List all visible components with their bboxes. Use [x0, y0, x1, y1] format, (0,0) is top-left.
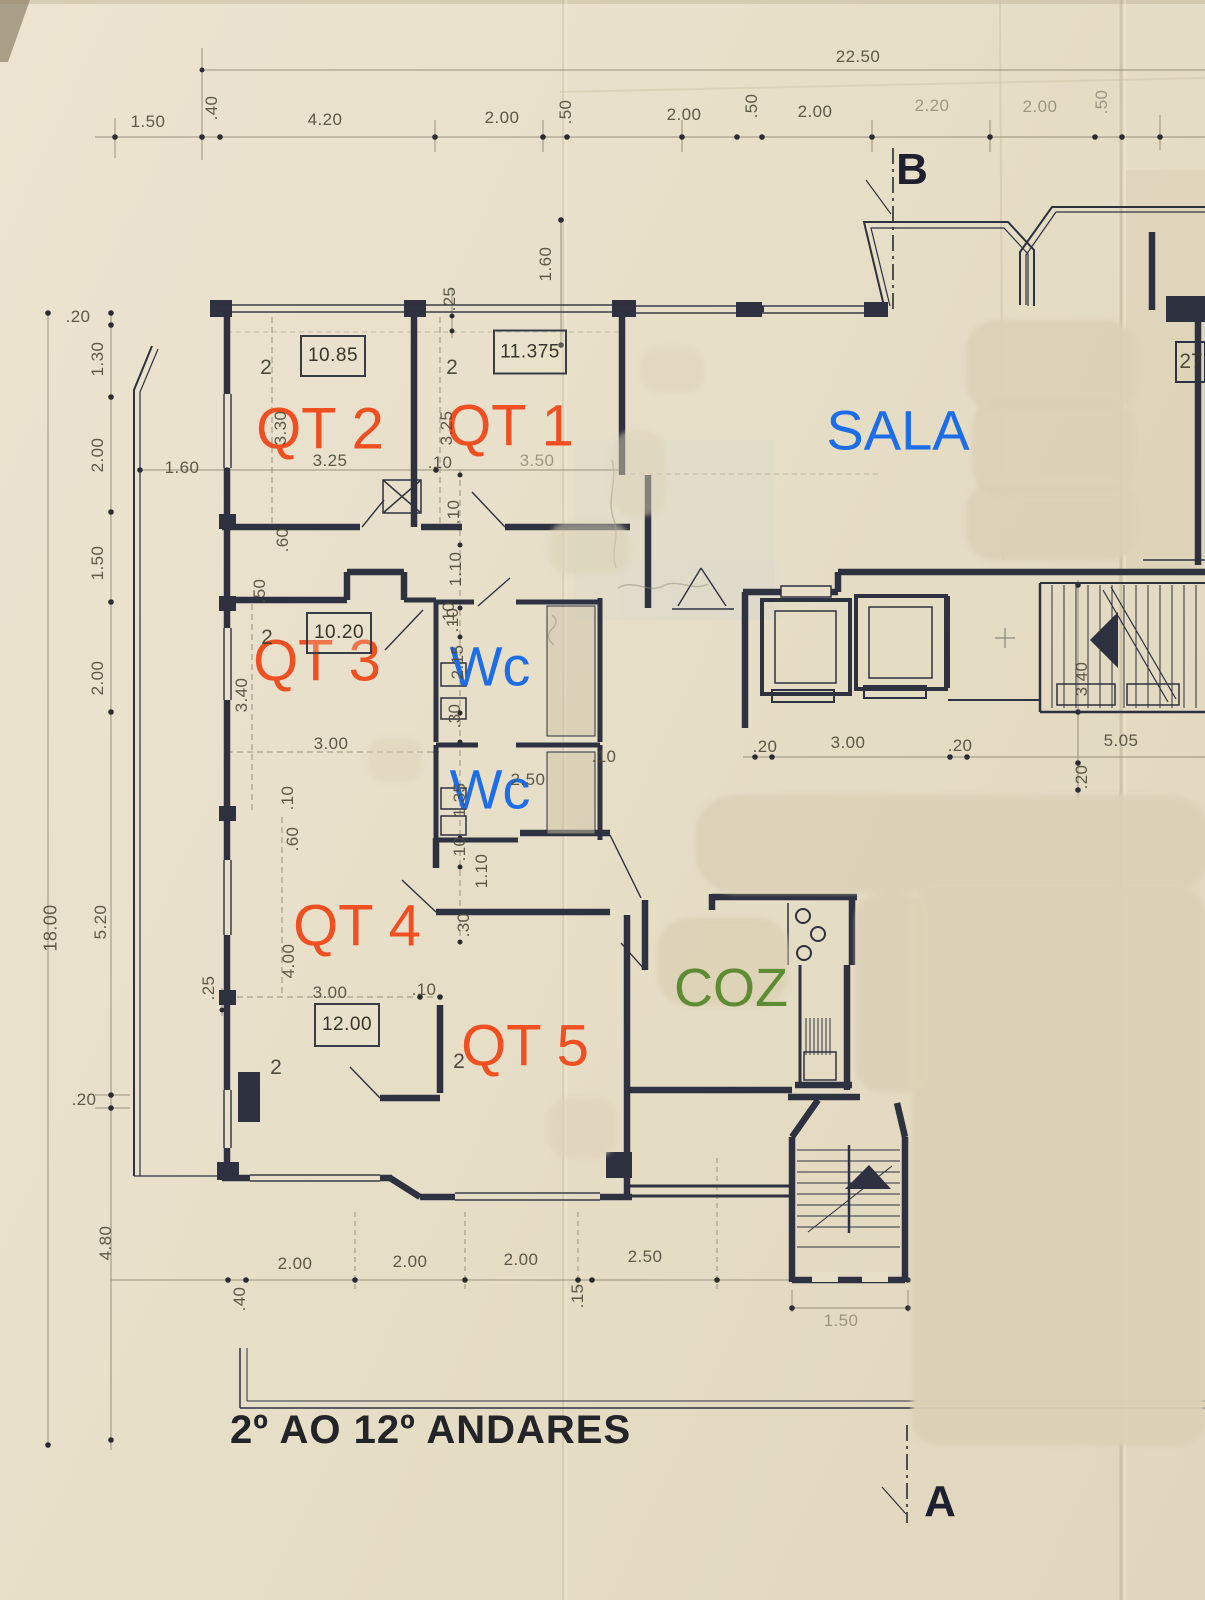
- floorplan-linework: [0, 0, 1205, 1600]
- floorplan-canvas: 2º AO 12º ANDARES B A QT 2QT 1SALAQT 3Wc…: [0, 0, 1205, 1600]
- kitchen-fixtures: [788, 903, 836, 1080]
- wc-fixtures: [441, 606, 595, 835]
- elevator-block: [762, 586, 946, 702]
- stairs-upper: [995, 583, 1205, 712]
- stairs-lower: [797, 1145, 900, 1282]
- whiteout-patches: [368, 320, 1205, 1445]
